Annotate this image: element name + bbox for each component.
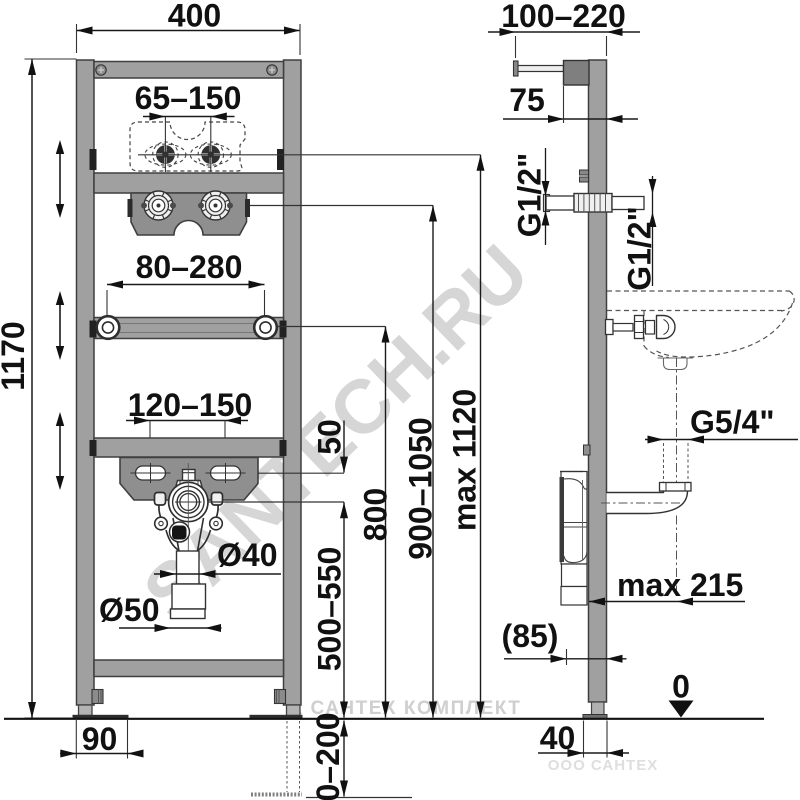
svg-text:500–550: 500–550	[312, 547, 348, 672]
svg-text:90: 90	[82, 721, 118, 757]
svg-text:G1/2": G1/2"	[622, 206, 658, 291]
svg-text:120–150: 120–150	[128, 387, 253, 423]
svg-text:max 1120: max 1120	[447, 389, 483, 531]
svg-text:100–220: 100–220	[501, 0, 626, 34]
svg-text:max 215: max 215	[617, 567, 743, 603]
svg-text:(85): (85)	[502, 618, 559, 654]
svg-text:75: 75	[509, 82, 545, 118]
svg-text:65–150: 65–150	[135, 80, 242, 116]
svg-text:0–200: 0–200	[310, 713, 346, 800]
svg-text:400: 400	[168, 0, 221, 34]
svg-text:800: 800	[358, 488, 394, 541]
svg-text:80–280: 80–280	[136, 249, 243, 285]
svg-text:1170: 1170	[0, 321, 31, 390]
svg-text:50: 50	[312, 419, 348, 455]
svg-text:G5/4": G5/4"	[690, 404, 775, 440]
svg-text:900–1050: 900–1050	[403, 417, 439, 559]
svg-text:G1/2": G1/2"	[512, 153, 548, 238]
svg-text:0: 0	[672, 669, 690, 705]
svg-text:Ø40: Ø40	[217, 537, 277, 573]
svg-text:ООО САНТЕХ: ООО САНТЕХ	[548, 757, 658, 774]
svg-text:Ø50: Ø50	[99, 592, 159, 628]
